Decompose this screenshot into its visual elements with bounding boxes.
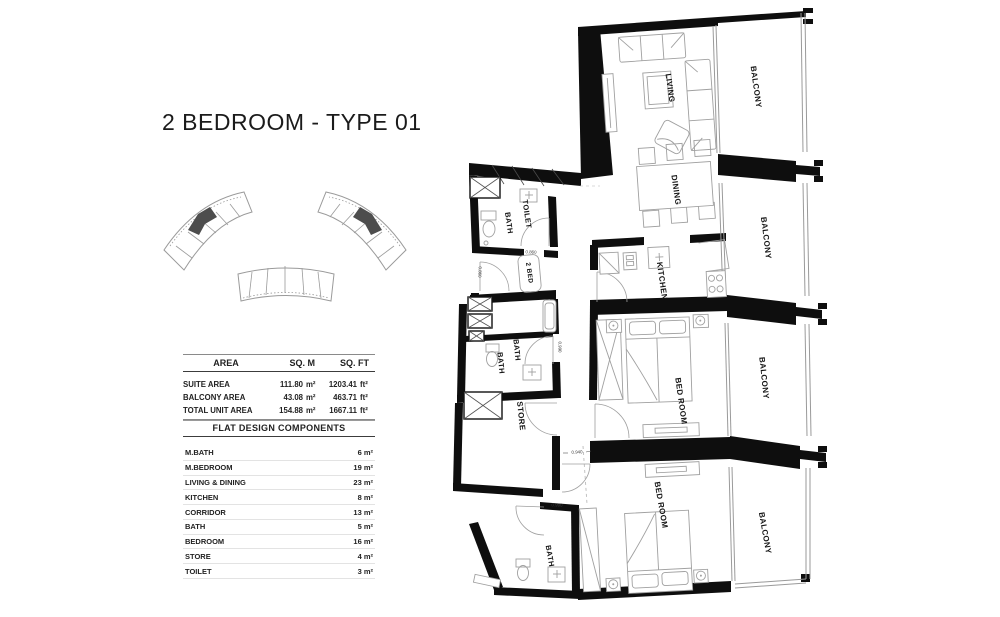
dim-label: 0.860: [477, 266, 483, 278]
floorplan-drawing: LIVING BALCONY DINING TOILET BATH 2 BED …: [0, 0, 1000, 617]
walls: [453, 8, 827, 600]
room-label-store: STORE: [515, 401, 527, 431]
room-label-balcony-3: BALCONY: [757, 356, 770, 399]
dim-label: 0.990: [551, 502, 563, 508]
room-label-bath-4: BATH: [544, 544, 557, 567]
key-plan-block-top-left: [164, 192, 252, 270]
room-label-bath-3: BATH: [495, 352, 506, 375]
dim-label: 0.860: [525, 249, 537, 255]
dim-label: 0.940: [571, 449, 583, 454]
room-label-bath-2: BATH: [511, 339, 522, 362]
key-plan-block-top-right: [318, 192, 406, 270]
room-label-balcony-2: BALCONY: [759, 216, 773, 259]
key-plan: [164, 192, 406, 301]
room-label-toilet: TOILET: [521, 199, 534, 229]
room-label-balcony-4: BALCONY: [757, 511, 773, 555]
room-label-bath-1: BATH: [503, 212, 515, 235]
key-plan-block-bottom: [238, 266, 334, 301]
room-label-entry: 2 BED: [524, 262, 534, 284]
room-label-balcony-1: BALCONY: [749, 65, 764, 108]
page: 2 BEDROOM - TYPE 01 AREA SQ. M SQ. FT SU…: [0, 0, 1000, 617]
dim-label: 0.990: [558, 342, 563, 354]
